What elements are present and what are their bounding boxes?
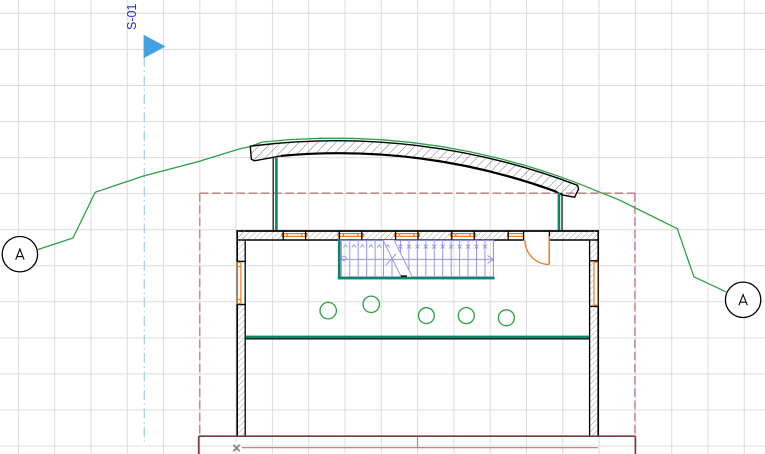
svg-text:S-01: S-01	[125, 4, 139, 30]
